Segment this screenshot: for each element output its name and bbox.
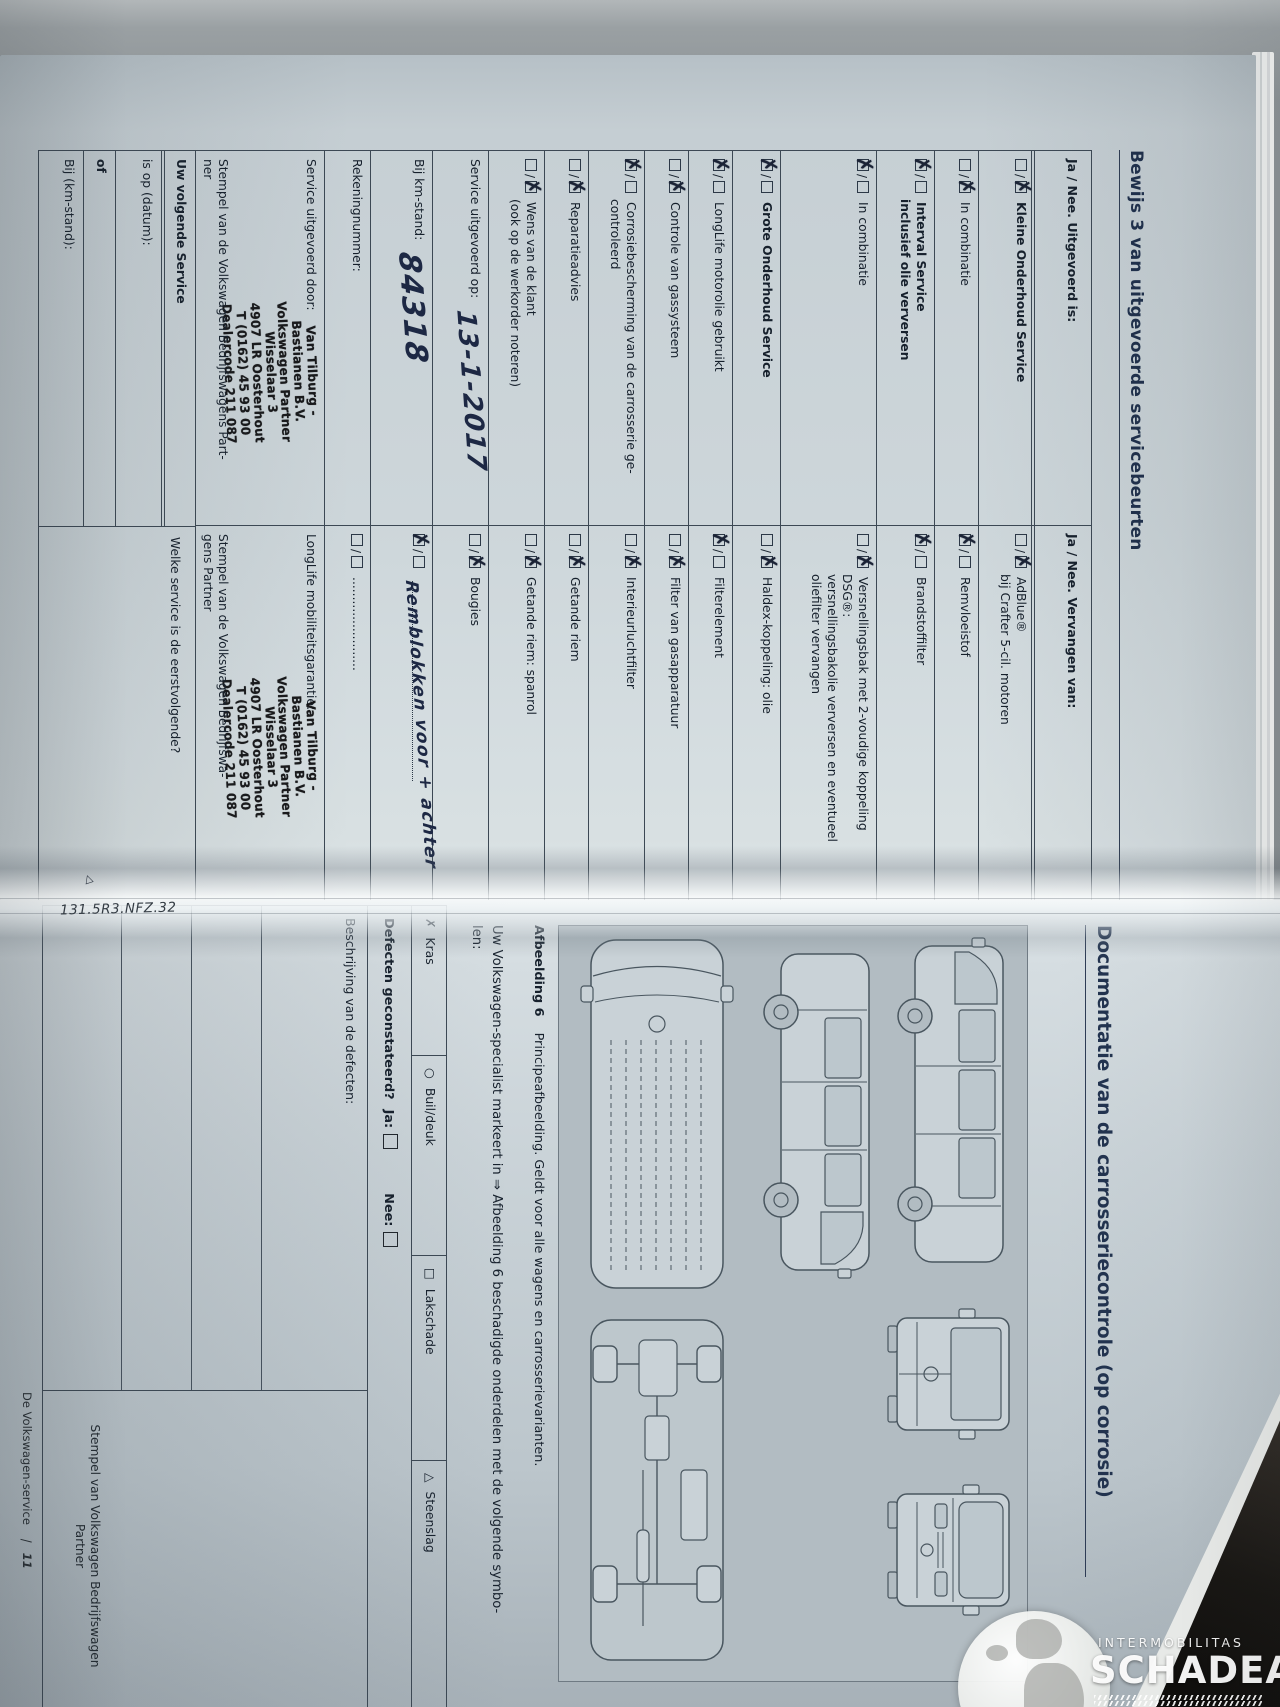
legend-lakschade: □Lakschade — [412, 1256, 446, 1461]
checkbox-empty — [669, 159, 681, 171]
checkbox-marked — [959, 181, 971, 193]
checkbox-marked — [569, 556, 581, 568]
service-row: /In combinatie/Versnellingsbak met 2-vou… — [780, 151, 876, 908]
service-row: Rekeningnummer:/........................ — [324, 151, 370, 908]
checkbox-marked — [669, 181, 681, 193]
checkbox-marked — [857, 159, 869, 171]
service-row-stamps: Service uitgevoerd door: Van Tilburg -Ba… — [195, 151, 324, 908]
van-outline-views — [559, 926, 1027, 1681]
legend-kras: ✗Kras — [412, 906, 446, 1056]
stone-chip-icon: △ — [412, 1473, 438, 1483]
next-service-km-label: Bij (km-stand): — [39, 151, 83, 526]
service-cell: /Filter van gasapparatuur — [645, 526, 688, 908]
checkbox-marked — [959, 534, 971, 546]
page-number: 11 — [20, 1553, 34, 1569]
next-service-question: Welke service is de eerstvolgende? — [39, 527, 195, 908]
checkbox-marked — [761, 159, 773, 171]
checkbox-marked — [525, 556, 537, 568]
yes-label: Ja: — [381, 1110, 396, 1129]
service-cell: /Interieurluchtfilter — [589, 526, 644, 908]
checkbox-empty — [857, 534, 869, 546]
stamp-caption: Stempel van Volkswagen Bedrijfswagen Par… — [72, 1411, 103, 1681]
figure-caption: Afbeelding 6Principeafbeelding. Geldt vo… — [531, 925, 546, 1466]
checkbox-empty — [569, 159, 581, 171]
checkbox-marked — [857, 556, 869, 568]
checkbox-marked — [525, 181, 537, 193]
checkbox-empty — [351, 534, 363, 546]
service-cell: /In combinatie — [781, 151, 876, 526]
service-cell: /Controle van gassysteem — [645, 151, 688, 526]
checkbox-empty — [761, 181, 773, 193]
stamp-caption-left: Stempel van de Volkswagen Bedrijfswagens… — [201, 159, 230, 460]
checkbox-marked — [915, 159, 927, 171]
checkbox-empty — [761, 534, 773, 546]
service-booklet-photo: Bewijs 3 van uitgevoerde servicebeurten … — [0, 0, 1280, 1707]
service-row: /Corrosiebescherming van de carrosserie … — [588, 151, 644, 908]
stamp-caption-right: Stempel van de Volkswagen Bedrijfswa- ge… — [201, 534, 230, 778]
description-cell: Beschrijving van de defecten: — [42, 906, 367, 1391]
service-cell: /Haldex-koppeling: olie — [733, 526, 780, 908]
service-row: Bij km-stand:84318/Remblokken voor + ach… — [370, 151, 432, 908]
stamp-cell: Stempel van Volkswagen Bedrijfswagen Par… — [42, 1391, 367, 1707]
marking-instructions-line2: len: — [465, 925, 485, 1613]
handwriting: 13-1-2017 — [453, 309, 488, 472]
service-cell: /Remvloeistof — [935, 526, 978, 908]
service-cell: /Brandstoffilter — [877, 526, 934, 908]
service-row: Service uitgevoerd op:13-1-2017/Bougies — [432, 151, 488, 908]
service-cell: /Filterelement — [689, 526, 732, 908]
next-service-left: Uw volgende Service is op (datum): of Bi… — [39, 151, 195, 527]
defects-found-row: Defecten geconstateerd? Ja: Nee: — [367, 906, 411, 1707]
service-row: /Wens van de klant(ook op de werkorder n… — [488, 151, 544, 908]
service-cell: /Kleine Onderhoud Service — [979, 151, 1034, 526]
service-row: /Interval Serviceinclusief olie ververse… — [876, 151, 934, 908]
ruled-line — [261, 906, 262, 1390]
description-area: Beschrijving van de defecten: Stempel va… — [42, 906, 367, 1707]
checkbox-empty — [569, 534, 581, 546]
scratch-icon: ✗ — [412, 918, 438, 928]
checkbox-empty — [1015, 159, 1027, 171]
service-cell: Service uitgevoerd door: Van Tilburg -Ba… — [196, 151, 324, 526]
paint-damage-icon: □ — [412, 1268, 438, 1280]
service-cell: LongLife mobiliteitsgarantie: Van Tilbur… — [196, 526, 324, 908]
checkbox-empty — [469, 534, 481, 546]
legend-steenslag: △Steenslag — [412, 1461, 446, 1707]
service-cell: /Grote Onderhoud Service — [733, 151, 780, 526]
dealer-stamp: Van Tilburg -Bastianen B.V.Volkswagen Pa… — [220, 675, 322, 819]
service-cell: /Bougies — [433, 526, 488, 908]
checkbox-marked — [669, 556, 681, 568]
checkbox-marked — [1015, 181, 1027, 193]
checkbox-empty — [351, 556, 363, 568]
defects-table: ✗Kras ○Buil/deuk □Lakschade △Steenslag D… — [42, 905, 447, 1707]
service-cell: /Getande riem: spanrol — [489, 526, 544, 908]
ruled-line — [121, 906, 122, 1390]
service-cell: /Interval Serviceinclusief olie ververse… — [877, 151, 934, 526]
footer-divider: | — [20, 1537, 35, 1544]
checkbox-marked — [915, 534, 927, 546]
checkbox-empty — [915, 556, 927, 568]
legend-row: ✗Kras ○Buil/deuk □Lakschade △Steenslag — [411, 906, 446, 1707]
no-label: Nee: — [381, 1193, 396, 1226]
checkbox-marked — [625, 159, 637, 171]
checkbox-empty — [959, 159, 971, 171]
checkbox-marked — [761, 556, 773, 568]
checkbox-empty — [915, 181, 927, 193]
service-table: Ja / Nee. Uitgevoerd is: Ja / Nee. Verva… — [38, 150, 1092, 909]
checkbox-marked — [413, 534, 425, 546]
service-row: /Reparatieadvies/Getande riem — [544, 151, 588, 908]
uitgevoerd-door-label: Service uitgevoerd door: — [303, 159, 318, 311]
checkbox-empty — [713, 181, 725, 193]
right-page: Documentatie van de carrosseriecontrole … — [0, 900, 1280, 1707]
open-booklet: Bewijs 3 van uitgevoerde servicebeurten … — [0, 0, 1280, 1707]
handwriting: 84318 — [395, 251, 430, 365]
ruled-line — [191, 906, 192, 1390]
service-row: /LongLife motorolie gebruikt/Filtereleme… — [688, 151, 732, 908]
service-cell: Bij km-stand:84318 — [371, 151, 432, 526]
no-checkbox — [383, 1232, 398, 1247]
header-uitgevoerd: Ja / Nee. Uitgevoerd is: — [1035, 151, 1091, 526]
legend-buildeuk: ○Buil/deuk — [412, 1056, 446, 1256]
footer-text: De Volkswagen-service — [20, 1392, 34, 1525]
defects-question: Defecten geconstateerd? — [381, 918, 396, 1100]
service-row: /Grote Onderhoud Service/Haldex-koppelin… — [732, 151, 780, 908]
figure-caption-text: Principeafbeelding. Geldt voor alle wage… — [531, 1033, 546, 1467]
next-service-or: of — [83, 151, 115, 526]
service-cell: /In combinatie — [935, 151, 978, 526]
service-cell: /LongLife motorolie gebruikt — [689, 151, 732, 526]
service-cell: /Getande riem — [545, 526, 588, 908]
checkbox-empty — [669, 534, 681, 546]
checkbox-marked — [469, 556, 481, 568]
service-row: /In combinatie/Remvloeistof — [934, 151, 978, 908]
checkbox-marked — [713, 159, 725, 171]
checkbox-empty — [959, 556, 971, 568]
service-cell: Service uitgevoerd op:13-1-2017 — [433, 151, 488, 526]
marking-instructions: Uw Volkswagen-specialist markeert in ⇒ A… — [465, 925, 506, 1613]
service-cell: /Corrosiebescherming van de carrosserie … — [589, 151, 644, 526]
page-footer: De Volkswagen-service|11 — [20, 1392, 34, 1569]
dent-icon: ○ — [412, 1068, 438, 1079]
left-page-title: Bewijs 3 van uitgevoerde servicebeurten — [1119, 150, 1146, 907]
checkbox-marked — [569, 181, 581, 193]
service-row: /Kleine Onderhoud Service/AdBlue®bij Cra… — [978, 151, 1034, 908]
checkbox-empty — [713, 556, 725, 568]
service-cell: /Versnellingsbak met 2-voudige koppeling… — [781, 526, 876, 908]
service-cell: /Remblokken voor + achter — [371, 526, 432, 908]
service-cell: Rekeningnummer: — [325, 151, 370, 526]
checkbox-empty — [857, 181, 869, 193]
next-service-block: Uw volgende Service is op (datum): of Bi… — [39, 151, 195, 908]
service-cell: /Wens van de klant(ook op de werkorder n… — [489, 151, 544, 526]
description-label: Beschrijving van de defecten: — [343, 918, 358, 1104]
marking-instructions-line1: Uw Volkswagen-specialist markeert in ⇒ A… — [486, 925, 506, 1613]
next-service-header: Uw volgende Service — [161, 151, 195, 526]
checkbox-empty — [625, 181, 637, 193]
next-service-date-label: is op (datum): — [115, 151, 161, 526]
checkbox-marked — [713, 534, 725, 546]
vehicle-diagrams-panel — [558, 925, 1028, 1682]
checkbox-empty — [413, 556, 425, 568]
service-cell: /........................ — [325, 526, 370, 908]
dealer-stamp: Van Tilburg -Bastianen B.V.Volkswagen Pa… — [220, 300, 322, 444]
right-page-title: Documentatie van de carrosseriecontrole … — [1085, 925, 1114, 1577]
service-table-header: Ja / Nee. Uitgevoerd is: Ja / Nee. Verva… — [1034, 151, 1091, 908]
yes-checkbox — [383, 1134, 398, 1149]
service-row: /Controle van gassysteem/Filter van gasa… — [644, 151, 688, 908]
figure-caption-number: Afbeelding 6 — [531, 925, 546, 1017]
checkbox-empty — [525, 534, 537, 546]
checkbox-empty — [625, 534, 637, 546]
service-rows: /Kleine Onderhoud Service/AdBlue®bij Cra… — [324, 151, 1034, 908]
service-cell: /Reparatieadvies — [545, 151, 588, 526]
checkbox-marked — [1015, 556, 1027, 568]
header-vervangen: Ja / Nee. Vervangen van: — [1035, 526, 1091, 908]
checkbox-empty — [1015, 534, 1027, 546]
checkbox-empty — [525, 159, 537, 171]
checkbox-marked — [625, 556, 637, 568]
left-page: Bewijs 3 van uitgevoerde servicebeurten … — [0, 55, 1256, 900]
form-code: 131.5R3.NFZ.32 — [60, 899, 177, 918]
service-cell: /AdBlue®bij Crafter 5-cil. motoren — [979, 526, 1034, 908]
